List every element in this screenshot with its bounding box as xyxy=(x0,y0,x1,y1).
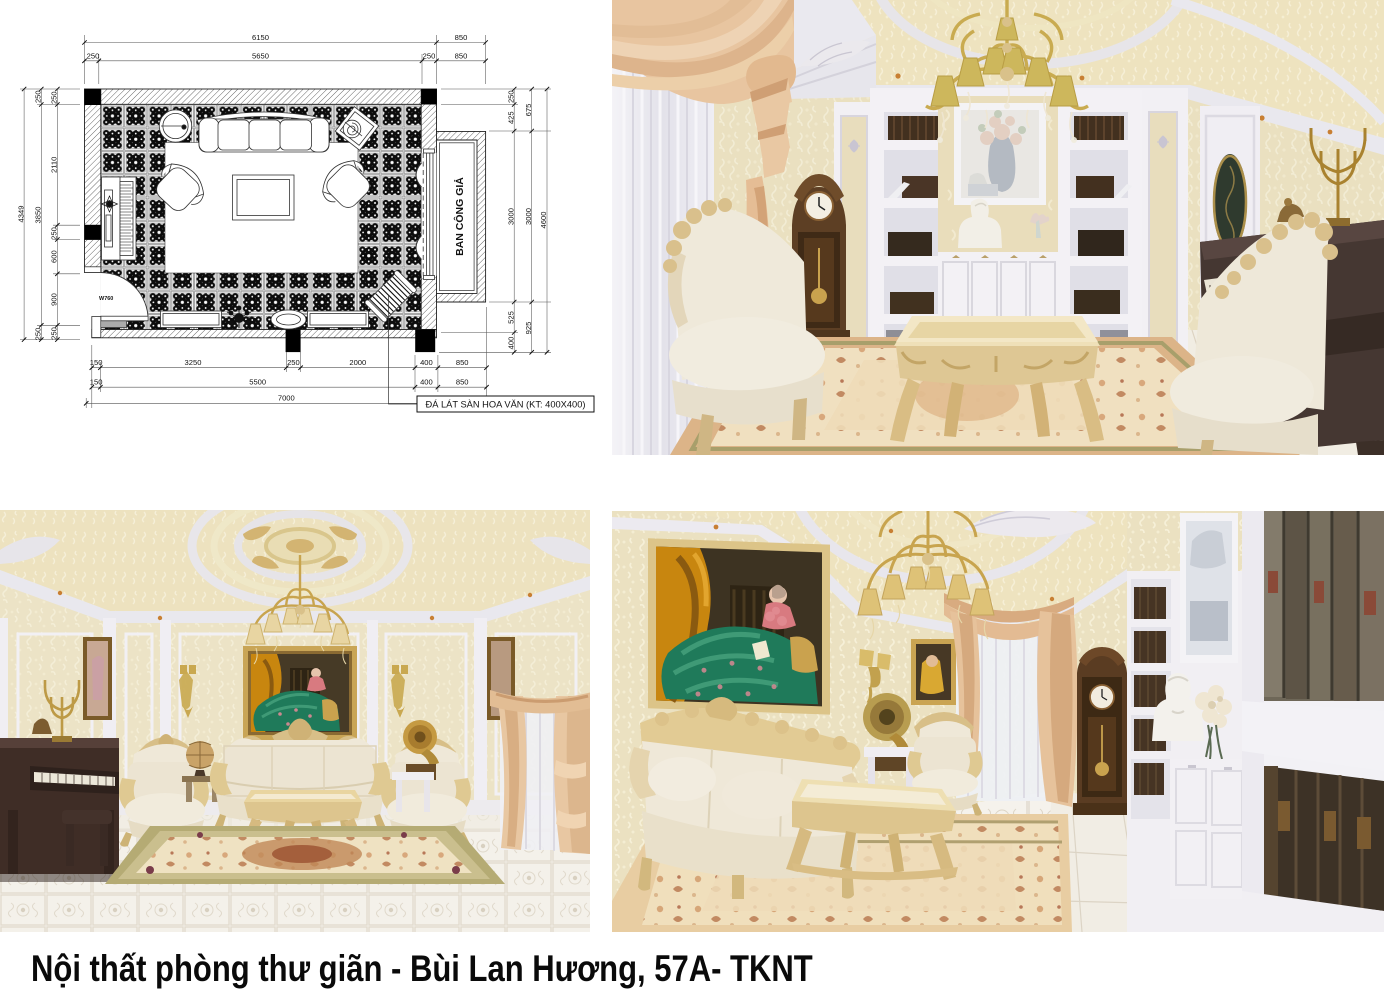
svg-text:2110: 2110 xyxy=(50,157,59,173)
svg-text:250: 250 xyxy=(50,227,59,240)
svg-text:3000: 3000 xyxy=(507,208,516,225)
svg-text:3250: 3250 xyxy=(185,358,202,367)
svg-text:150: 150 xyxy=(90,378,103,387)
svg-text:850: 850 xyxy=(456,358,469,367)
svg-text:250: 250 xyxy=(423,51,436,60)
svg-text:3000: 3000 xyxy=(524,208,533,225)
svg-text:4349: 4349 xyxy=(16,206,25,223)
svg-text:2000: 2000 xyxy=(349,358,366,367)
svg-text:850: 850 xyxy=(455,51,468,60)
svg-text:5650: 5650 xyxy=(252,51,269,60)
svg-text:150: 150 xyxy=(90,358,103,367)
svg-text:525: 525 xyxy=(507,311,516,324)
svg-text:5500: 5500 xyxy=(249,378,266,387)
svg-text:7000: 7000 xyxy=(278,394,295,403)
svg-text:925: 925 xyxy=(524,322,533,335)
svg-text:900: 900 xyxy=(50,293,59,306)
svg-text:4600: 4600 xyxy=(539,212,548,229)
svg-text:250: 250 xyxy=(507,90,516,103)
svg-text:W760: W760 xyxy=(99,296,113,302)
svg-text:400: 400 xyxy=(507,337,516,350)
svg-text:400: 400 xyxy=(420,358,433,367)
svg-text:3850: 3850 xyxy=(34,207,43,224)
svg-text:600: 600 xyxy=(50,250,59,263)
svg-text:ĐÁ LÁT SÀN HOA VĂN (KT: 400X40: ĐÁ LÁT SÀN HOA VĂN (KT: 400X400) xyxy=(425,400,585,410)
svg-text:250: 250 xyxy=(34,328,43,341)
svg-text:250: 250 xyxy=(87,51,100,60)
svg-text:675: 675 xyxy=(524,104,533,117)
svg-text:425: 425 xyxy=(507,111,516,124)
svg-text:250: 250 xyxy=(50,327,59,340)
svg-text:850: 850 xyxy=(455,33,468,42)
svg-text:6150: 6150 xyxy=(252,33,269,42)
svg-text:850: 850 xyxy=(456,378,469,387)
svg-text:250: 250 xyxy=(34,90,43,103)
svg-text:400: 400 xyxy=(420,378,433,387)
svg-text:250: 250 xyxy=(287,358,300,367)
svg-text:250: 250 xyxy=(50,91,59,104)
svg-text:BAN CÔNG GIẢ: BAN CÔNG GIẢ xyxy=(453,177,466,256)
